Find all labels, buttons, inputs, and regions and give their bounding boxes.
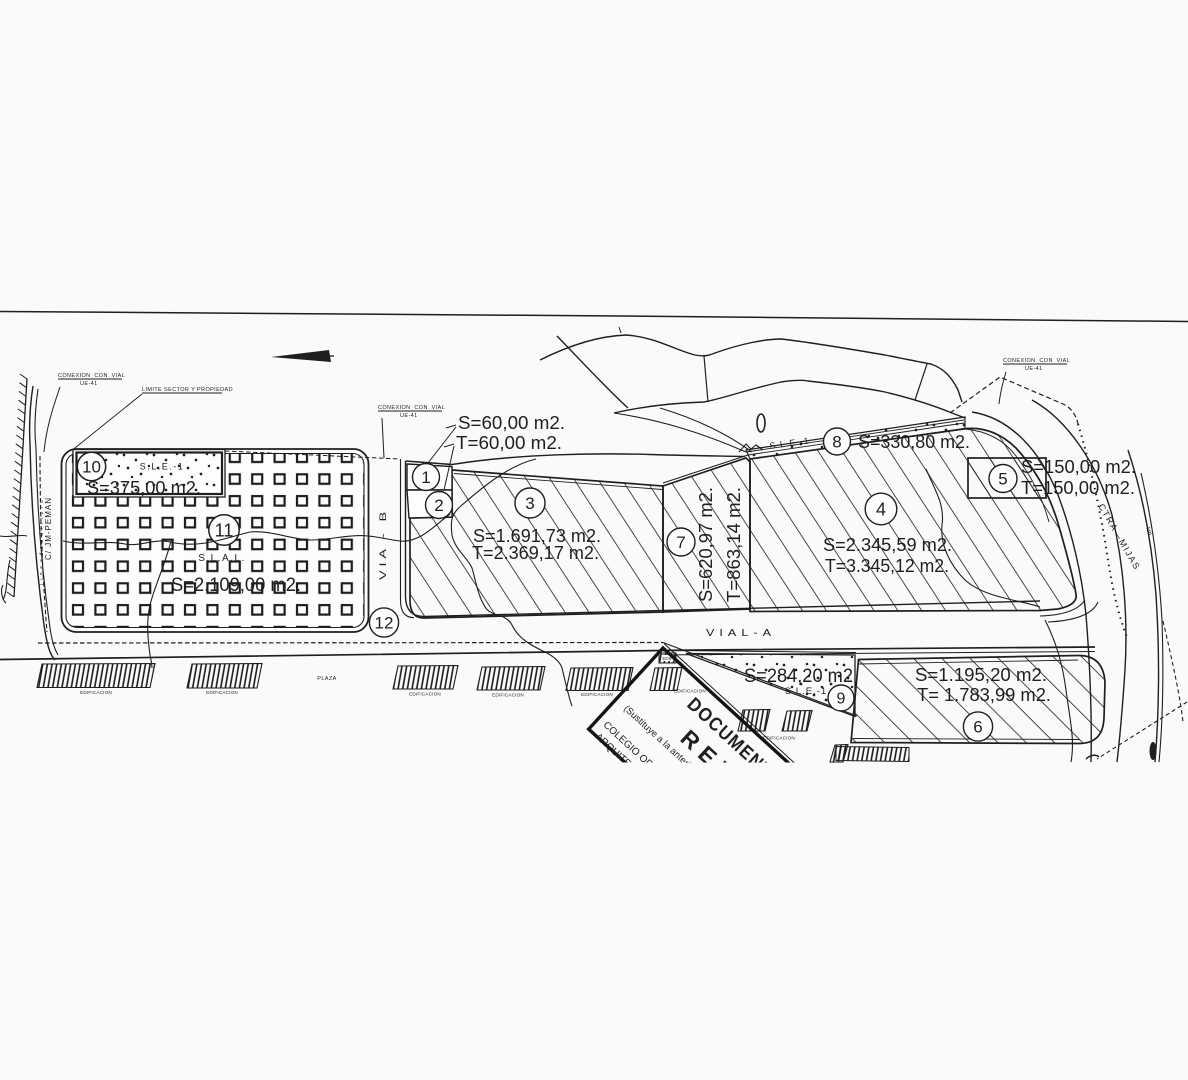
svg-text:l i n e a d e e d i f i c i: l i n e a d e e d i f i c i o: [39, 499, 45, 585]
svg-text:UE-41: UE-41: [80, 381, 98, 387]
svg-text:T=150,00 m2.: T=150,00 m2.: [1021, 478, 1135, 498]
svg-text:T=2.369,17 m2.: T=2.369,17 m2.: [472, 543, 599, 563]
svg-text:UE-41: UE-41: [1025, 366, 1043, 372]
svg-text:T= 1.783,99 m2.: T= 1.783,99 m2.: [917, 685, 1051, 705]
svg-text:3: 3: [525, 494, 534, 513]
svg-text:S=60,00 m2.: S=60,00 m2.: [458, 413, 565, 433]
svg-text:6: 6: [973, 718, 982, 737]
svg-text:8: 8: [832, 433, 841, 452]
svg-text:EDIFICACION: EDIFICACION: [80, 690, 112, 695]
svg-text:10: 10: [82, 458, 101, 477]
svg-text:S.L.A.L.: S.L.A.L.: [198, 553, 246, 564]
svg-text:S.L.E.-1: S.L.E.-1: [785, 686, 827, 697]
svg-text:C/ JM-PEMAN: C/ JM-PEMAN: [44, 497, 53, 560]
svg-text:UE-41: UE-41: [400, 413, 418, 419]
svg-text:S=1.195,20 m2.: S=1.195,20 m2.: [915, 665, 1047, 685]
svg-text:S.L.E.-1: S.L.E.-1: [140, 462, 185, 472]
svg-text:VIAL-A: VIAL-A: [706, 628, 776, 639]
svg-text:S=2.109,00 m2.: S=2.109,00 m2.: [171, 575, 301, 596]
svg-text:EDIFICACION: EDIFICACION: [206, 690, 238, 695]
svg-text:EDIFICACION: EDIFICACION: [674, 689, 706, 694]
svg-text:S=620,97 m2.: S=620,97 m2.: [696, 487, 716, 602]
svg-text:5: 5: [998, 470, 1007, 489]
svg-text:EDIFICACION: EDIFICACION: [492, 693, 524, 698]
svg-text:T=60,00 m2.: T=60,00 m2.: [456, 433, 562, 453]
svg-text:VIA - B: VIA - B: [378, 508, 389, 580]
svg-text:EDIFICACION: EDIFICACION: [581, 692, 613, 697]
svg-text:PLAZA: PLAZA: [317, 676, 336, 682]
svg-text:S=2.345,59 m2.: S=2.345,59 m2.: [823, 535, 952, 555]
svg-text:CONEXION CON VIAL: CONEXION CON VIAL: [378, 405, 445, 411]
svg-text:LIMITE SECTOR Y PROPIEDAD: LIMITE SECTOR Y PROPIEDAD: [142, 387, 233, 393]
svg-text:T=863,14 m2.: T=863,14 m2.: [724, 487, 744, 602]
svg-text:9: 9: [837, 691, 846, 708]
svg-text:S=284,20 m2: S=284,20 m2: [744, 666, 853, 687]
svg-text:S=330,80 m2.: S=330,80 m2.: [858, 432, 970, 452]
svg-text:4: 4: [876, 500, 886, 520]
svg-text:S=375,00 m2.: S=375,00 m2.: [87, 478, 201, 498]
svg-text:T=3.345,12 m2.: T=3.345,12 m2.: [825, 556, 949, 576]
svg-text:S=150,00 m2.: S=150,00 m2.: [1021, 457, 1136, 477]
svg-text:CONEXION CON VIAL: CONEXION CON VIAL: [1003, 358, 1070, 364]
svg-text:2: 2: [434, 496, 443, 515]
svg-text:1: 1: [421, 468, 430, 487]
svg-text:7: 7: [676, 533, 685, 552]
svg-text:EDIFICACION: EDIFICACION: [409, 692, 441, 697]
svg-text:12: 12: [375, 614, 394, 633]
svg-text:CONEXION CON VIAL: CONEXION CON VIAL: [58, 373, 125, 379]
